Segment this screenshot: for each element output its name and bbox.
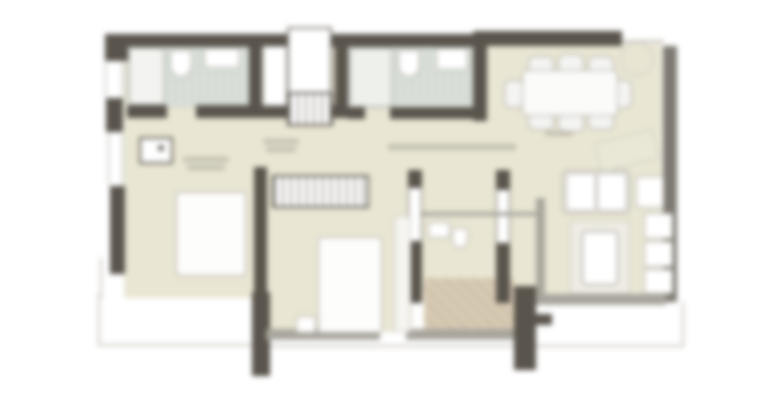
bathtub-icon: [129, 48, 164, 105]
console-module: [644, 269, 673, 294]
left-wall-lower: [110, 186, 125, 274]
wc-sink-icon: [428, 222, 450, 238]
wc-toilet-icon: [452, 228, 468, 248]
shower-2-icon: [350, 48, 392, 107]
floor-plan-screenshot: [0, 0, 780, 416]
label-smudge-bedroom-left-2: [187, 165, 225, 170]
balcony-left-side-line: [100, 258, 102, 298]
sofa: [562, 170, 630, 214]
hall-wall-under-bath1-a: [127, 105, 167, 118]
label-smudge-living-dining: [388, 144, 516, 150]
hall-wall-under-bath2-a: [348, 107, 365, 119]
balcony-left-outline: [98, 294, 258, 346]
label-smudge-hall-2: [266, 147, 296, 152]
sofa-cushion: [566, 173, 596, 211]
floor-plan: [0, 0, 780, 416]
label-smudge-bedroom-left-1: [183, 157, 229, 162]
service-shaft: [287, 27, 332, 95]
wardrobe-master: [272, 175, 369, 208]
closet-panel: [263, 46, 287, 106]
entry-pillar-nub: [536, 314, 552, 325]
window-left-lower: [108, 132, 123, 186]
console-module: [644, 241, 673, 267]
hall-wall-under-bath2-b: [390, 107, 473, 119]
fixture-dot: [158, 145, 164, 151]
master-bottom-wall-b: [406, 329, 514, 340]
window-left-upper: [105, 61, 123, 98]
bathroom-2-right-wall: [473, 32, 487, 121]
nightstand-icon: [296, 316, 316, 333]
dresser-strip: [394, 216, 411, 332]
sofa-cushion: [597, 173, 627, 211]
label-smudge-hall-1: [263, 139, 299, 144]
dining-chair: [504, 80, 524, 108]
console-module: [644, 213, 673, 239]
closet-shelves: [287, 92, 333, 126]
entry-pillar-right: [514, 286, 536, 370]
coffee-table: [582, 231, 618, 285]
top-wall-right: [474, 31, 622, 46]
toilet-1-icon: [170, 50, 192, 77]
toilet-2-icon: [398, 50, 420, 77]
bathroom-2-left-wall: [335, 40, 348, 118]
sink-2-icon: [436, 48, 468, 70]
label-smudge-living: [545, 131, 573, 136]
dining-table: [522, 70, 618, 116]
left-wall-corner: [105, 34, 128, 61]
living-bottom-wall: [536, 294, 666, 305]
bed-master: [318, 237, 382, 333]
bed-left: [176, 192, 246, 276]
left-wall-upper: [106, 98, 123, 132]
sink-1-icon: [204, 48, 240, 68]
armchair-side-table: [636, 176, 664, 208]
wc-door-opening: [497, 190, 509, 243]
bedroom-divider-wall: [254, 167, 267, 298]
wc-top-line: [422, 212, 538, 216]
top-wall-middle: [327, 34, 475, 47]
entry-fixture-icon: [139, 137, 173, 164]
plant-icon: [620, 42, 654, 76]
